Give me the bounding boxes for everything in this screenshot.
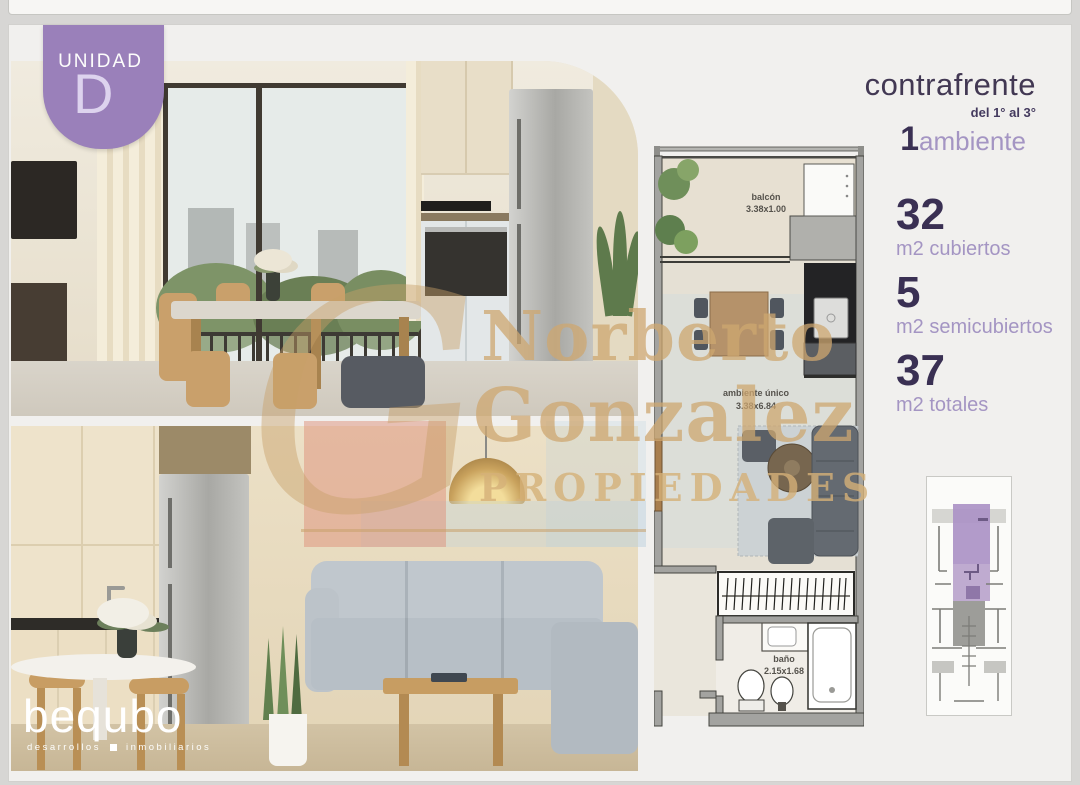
spec-covered-label: m2 cubiertos xyxy=(896,238,1076,261)
highlighted-unit xyxy=(953,504,990,564)
unit-badge-letter: D xyxy=(73,61,113,126)
key-plan-band xyxy=(984,661,1006,673)
building-key-plan xyxy=(926,476,1012,716)
wall xyxy=(700,691,716,698)
rooms-label: ambiente xyxy=(919,126,1026,157)
kitchen-sink xyxy=(814,298,848,338)
sofa-chaise xyxy=(551,622,638,754)
dining-table xyxy=(11,654,196,680)
chair xyxy=(770,298,784,318)
wall xyxy=(654,156,662,439)
bequbo-tagline: desarrollos inmobiliarios xyxy=(27,742,211,753)
bathroom-label: baño xyxy=(773,654,795,664)
main-room-dims: 3.38x6.84 xyxy=(736,401,776,411)
square-bullet-icon xyxy=(110,744,117,751)
sofa-backrest xyxy=(311,561,603,623)
plant xyxy=(674,230,698,254)
bathtub xyxy=(808,623,856,709)
chair xyxy=(770,330,784,350)
rooms-count: 1 ambiente xyxy=(831,120,1036,159)
dining-table xyxy=(171,301,421,319)
wall xyxy=(790,216,856,260)
window-line xyxy=(660,261,790,263)
dining-table xyxy=(710,292,768,356)
chair xyxy=(694,298,708,318)
toilet-tank xyxy=(739,700,764,711)
wall xyxy=(716,616,858,623)
balcony-label: balcón xyxy=(751,192,780,202)
toilet xyxy=(738,670,764,702)
counter-edge xyxy=(804,375,856,378)
spec-total-value: 37 xyxy=(896,349,1076,393)
plant xyxy=(677,159,699,181)
unit-badge: UNIDAD D xyxy=(43,25,164,149)
wall xyxy=(654,566,716,573)
window-city-view xyxy=(163,83,423,379)
flowers xyxy=(97,598,149,628)
chair xyxy=(341,356,425,408)
floors-range: del 1° al 3° xyxy=(831,105,1036,120)
coffee-table xyxy=(784,460,800,476)
previous-page-edge xyxy=(8,0,1072,15)
book xyxy=(431,673,467,682)
chair xyxy=(186,351,230,407)
ac-unit xyxy=(804,164,854,216)
bequbo-logo-name: bequbo xyxy=(23,693,211,739)
fridge xyxy=(509,89,593,371)
entry-door xyxy=(655,439,662,511)
brochure-page: UNIDAD D balcón 3.38x1.00 xyxy=(8,24,1072,782)
coffee-table-leg xyxy=(493,694,503,766)
sideboard xyxy=(11,283,67,363)
unit-header: contrafrente del 1° al 3° 1 ambiente xyxy=(831,67,1036,159)
bequbo-logo: bequbo desarrollos inmobiliarios xyxy=(23,693,211,753)
vanity-basin xyxy=(768,627,796,646)
sofa xyxy=(812,426,858,556)
area-specs: 32 m2 cubiertos 5 m2 semicubiertos 37 m2… xyxy=(896,193,1076,427)
ac-detail xyxy=(846,175,849,178)
upper-cabinets xyxy=(11,426,159,618)
balcony-dims: 3.38x1.00 xyxy=(746,204,786,214)
bequbo-tagline-right: inmobiliarios xyxy=(126,742,211,753)
orientation-title: contrafrente xyxy=(831,67,1036,103)
spec-semicovered-value: 5 xyxy=(896,271,1076,315)
unit-wall-detail xyxy=(966,586,980,599)
sofa-chaise xyxy=(768,518,814,564)
chair xyxy=(273,353,317,409)
main-room-label: ambiente único xyxy=(723,388,790,398)
lamp-cord xyxy=(485,426,487,460)
bathtub-drain xyxy=(829,687,835,693)
wall xyxy=(654,691,662,726)
unit-wall-detail xyxy=(978,518,988,521)
floor-plan: balcón 3.38x1.00 ambiente único 3.38x6.8… xyxy=(654,146,864,728)
window-line xyxy=(660,256,790,258)
wall xyxy=(709,713,864,726)
wall xyxy=(654,511,662,568)
ac-detail xyxy=(846,185,849,188)
plant-pot xyxy=(269,714,307,766)
coffee-table-leg xyxy=(399,694,409,766)
spec-covered: 32 m2 cubiertos xyxy=(896,193,1076,261)
ac-detail xyxy=(846,195,849,198)
bidet-detail xyxy=(778,702,786,711)
wall xyxy=(716,616,723,660)
countertop xyxy=(421,213,513,221)
floor xyxy=(11,361,638,416)
closet xyxy=(718,572,854,616)
chair xyxy=(694,330,708,350)
upper-cabinets xyxy=(421,61,513,175)
spec-total-label: m2 totales xyxy=(896,394,1076,417)
bequbo-tagline-left: desarrollos xyxy=(27,742,101,753)
window-frame xyxy=(256,88,262,374)
spec-covered-value: 32 xyxy=(896,193,1076,237)
bathroom-dims: 2.15x1.68 xyxy=(764,666,804,676)
rooms-number: 1 xyxy=(900,120,919,159)
spec-semicovered: 5 m2 semicubiertos xyxy=(896,271,1076,339)
tv xyxy=(11,161,77,239)
bidet xyxy=(771,677,793,705)
vase xyxy=(266,267,280,301)
kitchen-lower-counter xyxy=(804,343,856,375)
spec-total: 37 m2 totales xyxy=(896,349,1076,417)
oven xyxy=(425,227,507,296)
cooktop xyxy=(421,201,491,211)
cabinet-niche xyxy=(159,426,251,474)
key-plan-band xyxy=(932,661,954,673)
flowers xyxy=(254,249,292,271)
spec-semicovered-label: m2 semicubiertos xyxy=(896,316,1076,339)
